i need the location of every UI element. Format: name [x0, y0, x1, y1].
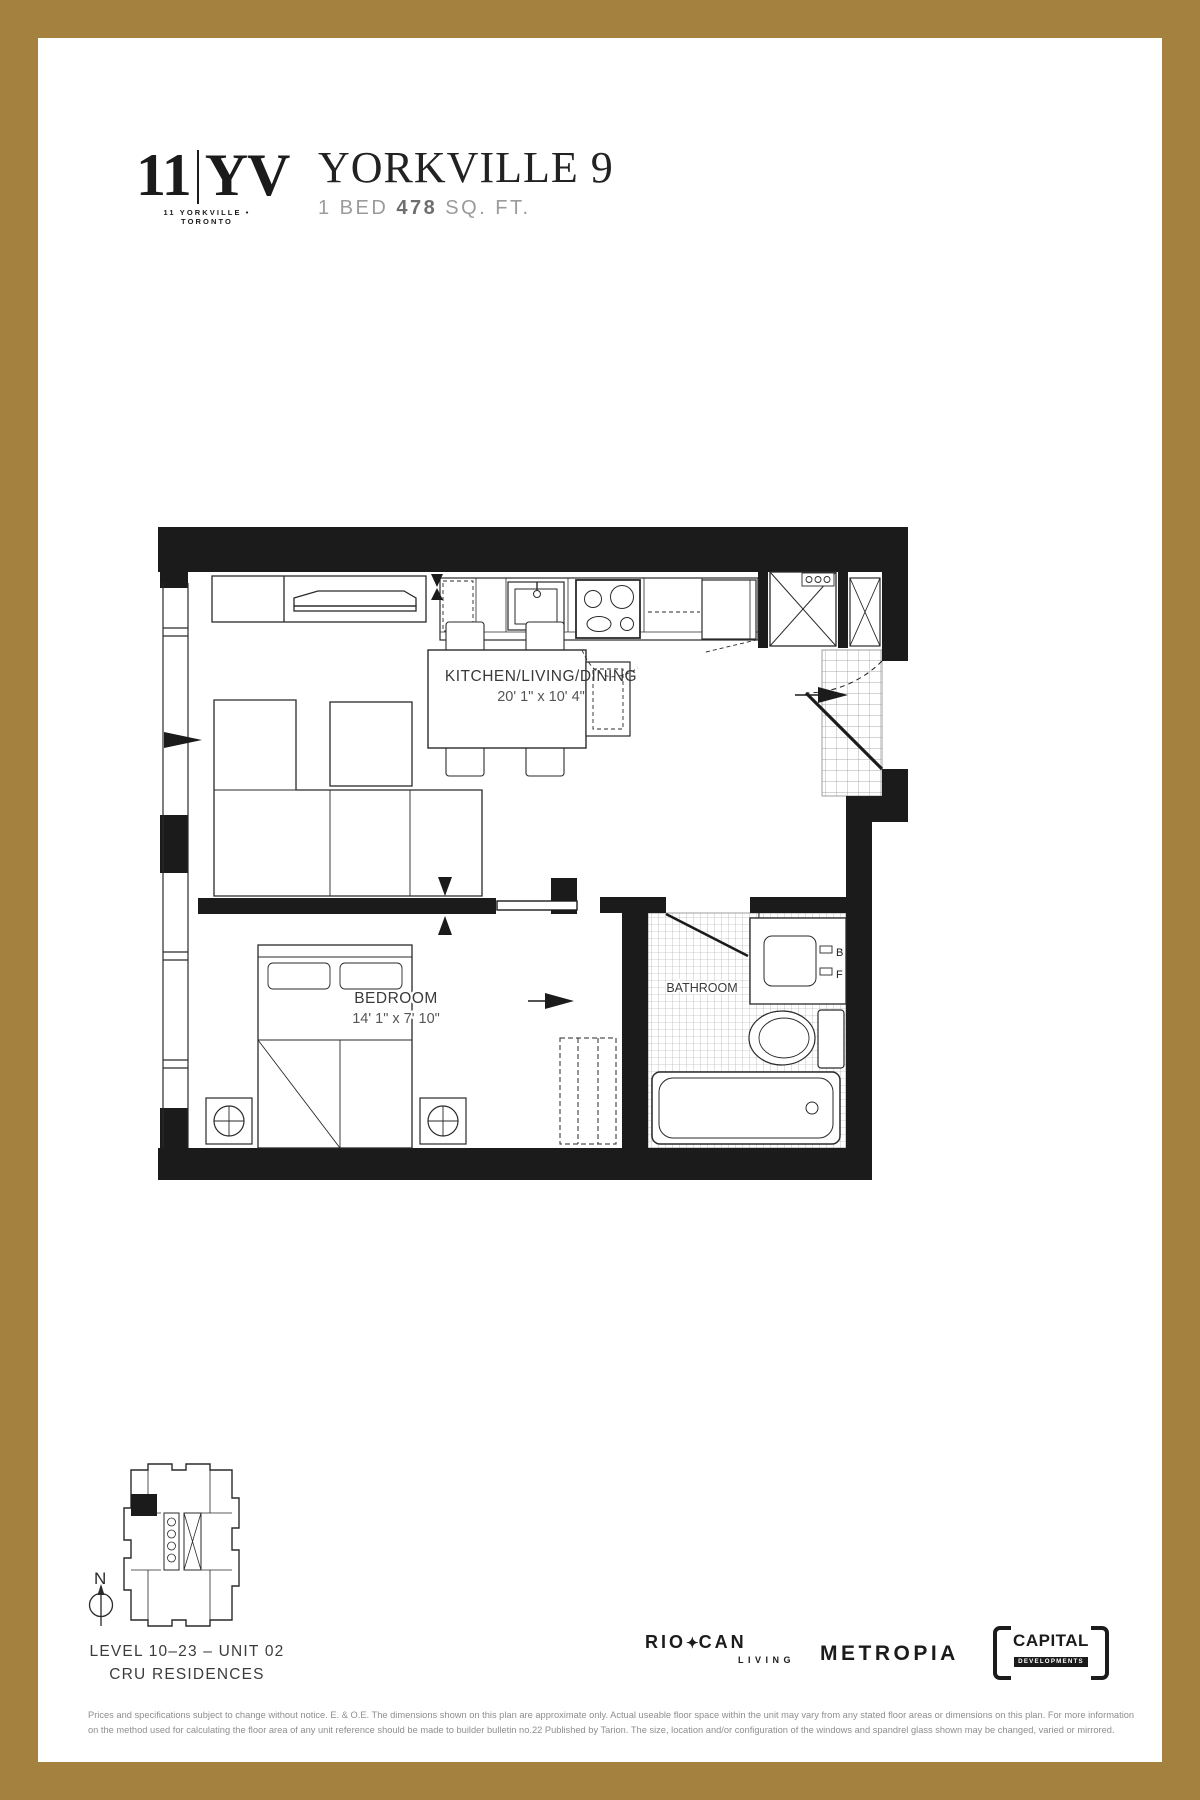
- capital-main-text: CAPITAL: [1009, 1632, 1093, 1650]
- keyplan-caption: LEVEL 10–23 – UNIT 02 CRU RESIDENCES: [62, 1640, 312, 1686]
- fridge: [702, 580, 756, 652]
- washer-dryer-closet: [770, 572, 836, 646]
- riocan-living-logo: RIO✦CAN LIVING: [645, 1632, 795, 1665]
- tv-console: [212, 576, 426, 622]
- bathtub: [652, 1072, 840, 1144]
- keyplan-unit-highlight: [131, 1494, 157, 1516]
- kitchen-label: KITCHEN/LIVING/DINING: [445, 668, 637, 685]
- compass: N: [90, 1569, 113, 1626]
- floor-plan-drawing: B F KITCHEN/LIVING/DINING 20' 1" x 10' 4…: [140, 445, 910, 1190]
- bedroom-dims: 14' 1" x 7' 10": [352, 1011, 440, 1027]
- entry-closet: [850, 578, 880, 646]
- vanity-label-f: F: [836, 969, 843, 981]
- kitchen-dims: 20' 1" x 10' 4": [497, 689, 585, 705]
- page-title: YORKVILLE 9: [318, 144, 614, 192]
- toilet: [749, 1010, 844, 1068]
- riocan-living-text: LIVING: [645, 1655, 795, 1665]
- legal-fine-print: Prices and specifications subject to cha…: [88, 1708, 1118, 1738]
- riocan-text-right: CAN: [699, 1632, 747, 1652]
- bedroom-sliding-door: [497, 901, 577, 910]
- spec-sqft-number: 478: [396, 197, 437, 219]
- stove: [576, 580, 640, 638]
- bed: [258, 945, 412, 1148]
- riocan-leaf-icon: ✦: [686, 1635, 699, 1652]
- fine-print-line2: on the method used for calculating the f…: [88, 1723, 1118, 1738]
- keyplan-core-elevators: [164, 1513, 179, 1570]
- dining-end-chair: [582, 650, 638, 736]
- logo-letters: YV: [205, 146, 290, 204]
- nightstand-left: [206, 1098, 252, 1144]
- logo-number: 11: [136, 146, 191, 204]
- capital-developments-logo: CAPITAL DEVELOPMENTS: [993, 1626, 1109, 1680]
- fine-print-line1: Prices and specifications subject to cha…: [88, 1708, 1118, 1723]
- capital-bracket-right-icon: [1091, 1626, 1109, 1680]
- bathroom-label: BATHROOM: [666, 981, 737, 995]
- spec-sqft-label: SQ. FT.: [437, 197, 530, 219]
- title-block: YORKVILLE 9 1 BED 478 SQ. FT.: [318, 144, 614, 220]
- capital-sub-text: DEVELOPMENTS: [1014, 1657, 1088, 1667]
- key-plan: N: [86, 1458, 276, 1638]
- ottoman: [330, 702, 412, 786]
- compass-label: N: [94, 1569, 106, 1588]
- nightstand-right: [420, 1098, 466, 1144]
- vanity-label-b: B: [836, 947, 843, 959]
- brand-logo: 11 YV 11 YORKVILLE • TORONTO: [136, 146, 289, 226]
- foyer-tile: [822, 650, 882, 796]
- logo-tagline: 11 YORKVILLE • TORONTO: [136, 208, 278, 226]
- plan-spec: 1 BED 478 SQ. FT.: [318, 197, 614, 220]
- bedroom-closet: [560, 1038, 616, 1144]
- riocan-text-left: RIO: [645, 1632, 686, 1652]
- spec-bed: 1 BED: [318, 197, 396, 219]
- bedroom-label: BEDROOM: [354, 990, 438, 1007]
- keyplan-outline: [124, 1464, 239, 1626]
- logo-divider-bar: [197, 150, 199, 204]
- keyplan-level-text: LEVEL 10–23 – UNIT 02: [62, 1640, 312, 1663]
- floorplan-sheet: 11 YV 11 YORKVILLE • TORONTO YORKVILLE 9…: [0, 0, 1200, 1800]
- bathroom-vanity: [750, 918, 846, 1004]
- keyplan-residence-text: CRU RESIDENCES: [62, 1663, 312, 1686]
- metropia-logo: METROPIA: [820, 1642, 959, 1666]
